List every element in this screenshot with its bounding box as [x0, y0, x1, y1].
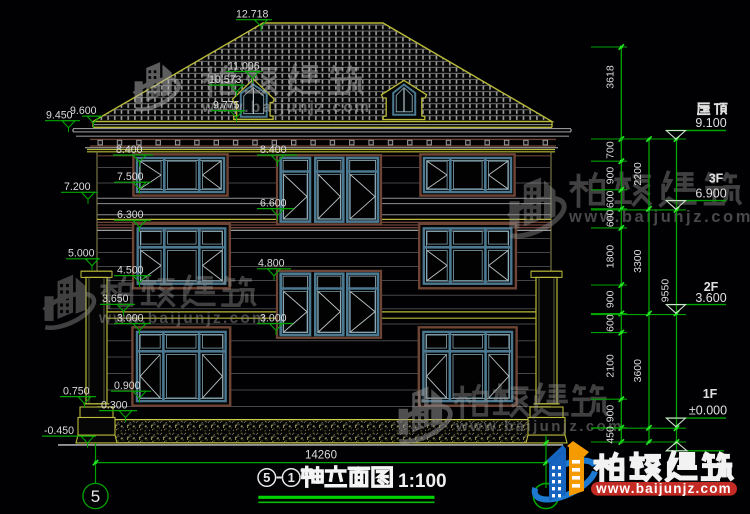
svg-text:3.000: 3.000 — [260, 312, 287, 324]
svg-text:3.000: 3.000 — [117, 312, 144, 324]
svg-text:900: 900 — [605, 405, 617, 423]
svg-text:0.300: 0.300 — [101, 399, 128, 411]
svg-text:±0.000: ±0.000 — [689, 403, 727, 417]
svg-text:5: 5 — [263, 470, 270, 485]
svg-text:3618: 3618 — [605, 65, 617, 89]
svg-text:1: 1 — [288, 470, 295, 485]
svg-text:11.006: 11.006 — [228, 60, 260, 72]
svg-text:9550: 9550 — [660, 279, 672, 303]
svg-text:600: 600 — [605, 190, 617, 208]
svg-text:600: 600 — [605, 314, 617, 332]
svg-text:1F: 1F — [703, 387, 718, 401]
svg-text:7.200: 7.200 — [64, 181, 91, 193]
svg-text:9.100: 9.100 — [695, 116, 726, 130]
svg-text:9.775: 9.775 — [213, 99, 240, 111]
svg-text:7.500: 7.500 — [117, 171, 144, 183]
svg-text:www.baijunjz.com: www.baijunjz.com — [455, 418, 624, 435]
svg-text:www.baijunjz.com: www.baijunjz.com — [568, 208, 750, 226]
svg-text:8.400: 8.400 — [260, 144, 287, 156]
svg-text:1800: 1800 — [605, 245, 617, 269]
svg-text:9.450: 9.450 — [46, 110, 73, 122]
svg-text:3300: 3300 — [632, 249, 644, 273]
svg-text:3.650: 3.650 — [102, 293, 129, 305]
svg-text:www.baijunjz.com: www.baijunjz.com — [595, 481, 732, 496]
svg-text:3F: 3F — [709, 172, 724, 186]
svg-text:900: 900 — [605, 290, 617, 308]
svg-text:4.800: 4.800 — [258, 258, 285, 270]
svg-text:-0.450: -0.450 — [44, 425, 74, 437]
svg-text:0.750: 0.750 — [63, 385, 90, 397]
svg-text:14260: 14260 — [305, 450, 337, 462]
svg-text:2100: 2100 — [605, 354, 617, 378]
svg-text:6.300: 6.300 — [117, 209, 144, 221]
svg-text:900: 900 — [605, 167, 617, 185]
svg-text:6.900: 6.900 — [695, 186, 726, 200]
svg-text:8.400: 8.400 — [116, 144, 143, 156]
svg-text:10.573: 10.573 — [209, 74, 242, 86]
svg-text:3600: 3600 — [632, 359, 644, 383]
svg-text:450: 450 — [605, 426, 617, 444]
svg-text:600: 600 — [605, 209, 617, 227]
svg-text:5.000: 5.000 — [68, 248, 95, 260]
svg-text:700: 700 — [605, 141, 617, 159]
svg-text:5: 5 — [91, 487, 100, 506]
svg-text:1:100: 1:100 — [398, 471, 447, 492]
svg-text:12.718: 12.718 — [236, 9, 269, 21]
svg-text:3.600: 3.600 — [695, 291, 726, 305]
svg-text:0.900: 0.900 — [114, 380, 141, 392]
svg-text:4.500: 4.500 — [117, 264, 144, 276]
svg-text:2200: 2200 — [632, 162, 644, 186]
svg-text:6.600: 6.600 — [260, 197, 287, 209]
svg-text:9.600: 9.600 — [70, 105, 97, 117]
